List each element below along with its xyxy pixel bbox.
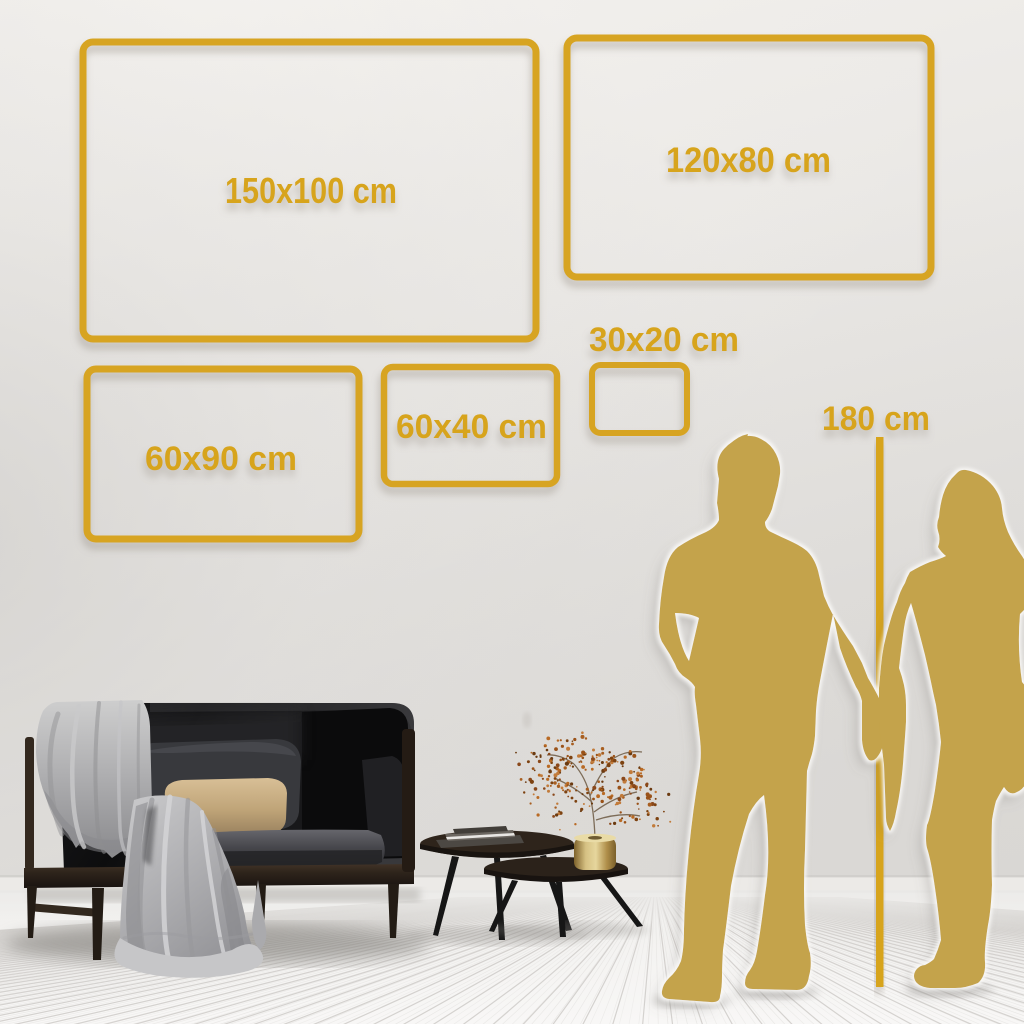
svg-text:120x80 cm: 120x80 cm [666, 141, 831, 180]
svg-text:60x40 cm: 60x40 cm [396, 408, 547, 446]
svg-text:30x20 cm: 30x20 cm [589, 321, 739, 359]
svg-text:60x90 cm: 60x90 cm [145, 440, 297, 478]
svg-text:150x100 cm: 150x100 cm [225, 170, 397, 211]
svg-text:180 cm: 180 cm [822, 400, 930, 438]
